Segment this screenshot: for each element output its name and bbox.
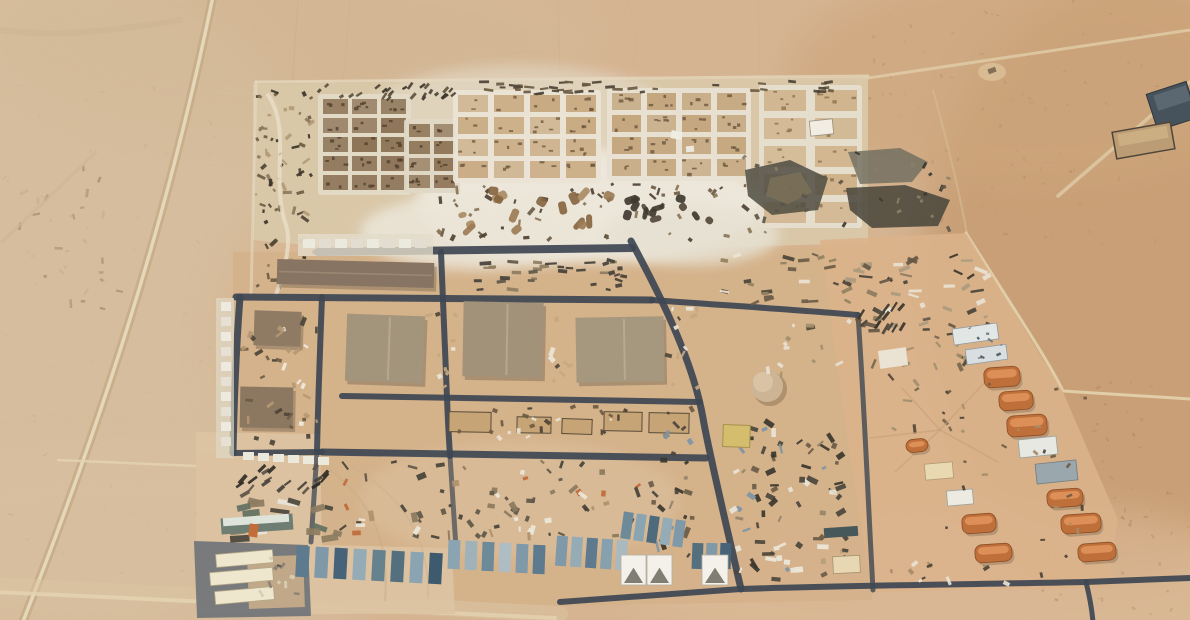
dome-highlight bbox=[753, 372, 773, 392]
white-item-north-2 bbox=[686, 146, 694, 153]
shed-3 bbox=[562, 418, 593, 434]
container-strip-bg-top bbox=[298, 234, 433, 256]
white-tent-north bbox=[809, 119, 833, 136]
orange-hut-8 bbox=[974, 543, 1014, 567]
orange-hut-4 bbox=[1046, 488, 1085, 512]
tarp-white-3 bbox=[1018, 436, 1058, 458]
admin-building-north bbox=[253, 310, 304, 350]
long-warehouse bbox=[277, 259, 437, 292]
yellow-tent bbox=[723, 425, 751, 448]
tarp-gray bbox=[1035, 460, 1078, 484]
white-tent-1 bbox=[621, 555, 646, 585]
warehouse-2 bbox=[462, 301, 546, 381]
aerial-photograph bbox=[0, 0, 1190, 620]
orange-hut-5 bbox=[1060, 512, 1103, 537]
container-row-3 bbox=[555, 536, 628, 571]
orange-hut-6 bbox=[1077, 542, 1118, 566]
warehouse-1 bbox=[345, 314, 428, 387]
aerial-photo-stage bbox=[0, 0, 1190, 620]
orange-hut-3 bbox=[1006, 413, 1050, 440]
tarp-white-4 bbox=[946, 489, 973, 506]
orange-hut-2 bbox=[998, 390, 1035, 414]
storage-grid-dense-2 bbox=[404, 119, 460, 193]
storage-grid-dense-1 bbox=[318, 94, 411, 195]
white-tent-2 bbox=[647, 555, 672, 585]
white-tent-3 bbox=[702, 555, 728, 585]
orange-equipment-small bbox=[248, 523, 259, 537]
cream-hut-annex bbox=[924, 462, 953, 480]
orange-hut-7 bbox=[961, 513, 998, 537]
orange-hut-1 bbox=[983, 366, 1023, 392]
storage-grid-mid-1 bbox=[453, 90, 601, 183]
warehouse-3 bbox=[575, 316, 667, 386]
cream-hut-south bbox=[833, 555, 861, 573]
admin-building-south bbox=[240, 387, 296, 432]
shed-1 bbox=[449, 412, 491, 433]
